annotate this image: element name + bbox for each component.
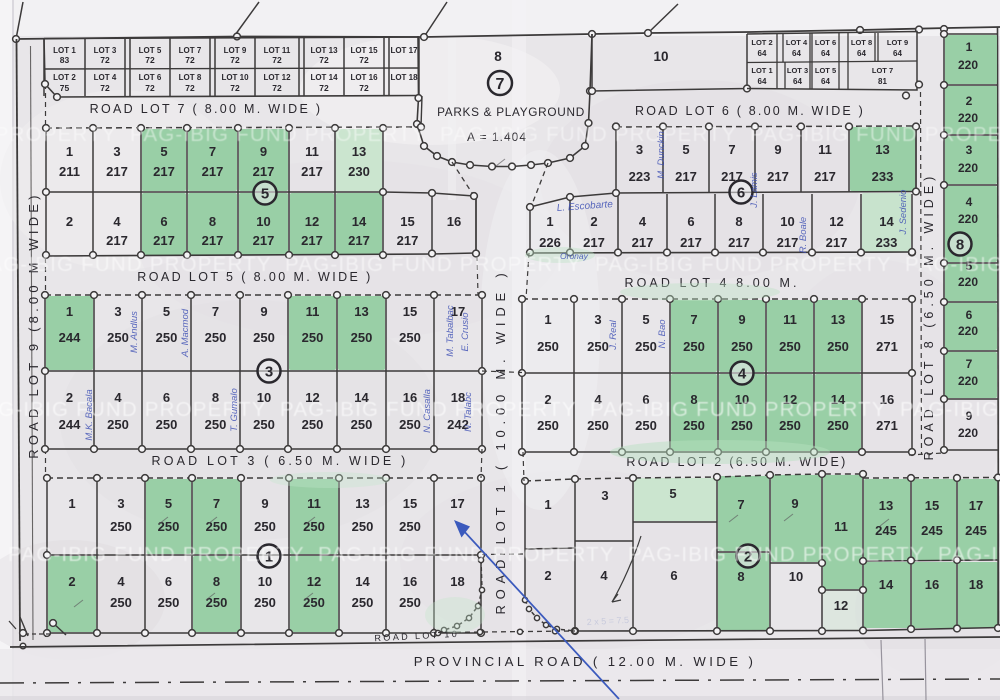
svg-text:217: 217 (253, 164, 275, 179)
svg-text:N. Talabc: N. Talabc (463, 392, 474, 432)
svg-text:LOT 4: LOT 4 (94, 73, 117, 82)
svg-text:T. Gumalo: T. Gumalo (229, 388, 240, 431)
svg-text:250: 250 (303, 595, 325, 610)
svg-text:LOT 17: LOT 17 (390, 46, 418, 55)
svg-text:72: 72 (319, 55, 329, 65)
svg-text:64: 64 (857, 49, 866, 58)
svg-text:LOT 18: LOT 18 (390, 73, 418, 82)
svg-text:64: 64 (758, 49, 767, 58)
svg-text:10: 10 (780, 214, 794, 229)
svg-text:1: 1 (544, 497, 551, 512)
svg-text:LOT 3: LOT 3 (94, 46, 117, 55)
svg-text:PAG-IBIG FUND PROPERTY: PAG-IBIG FUND PROPERTY (905, 253, 1000, 276)
svg-text:233: 233 (876, 235, 898, 250)
svg-text:14: 14 (352, 214, 367, 229)
svg-text:9: 9 (260, 144, 267, 159)
svg-text:3: 3 (594, 312, 601, 327)
svg-text:9: 9 (260, 304, 267, 319)
svg-text:A. Macmod: A. Macmod (180, 308, 191, 358)
svg-text:223: 223 (629, 169, 651, 184)
svg-text:LOT 7: LOT 7 (179, 46, 202, 55)
svg-text:250: 250 (587, 339, 609, 354)
svg-text:220: 220 (958, 161, 978, 175)
svg-text:72: 72 (230, 55, 240, 65)
svg-text:6: 6 (737, 184, 745, 201)
svg-text:14: 14 (879, 214, 894, 229)
svg-text:217: 217 (106, 164, 128, 179)
svg-text:13: 13 (355, 496, 369, 511)
svg-text:PAG-IBIG FUND PROPERTY: PAG-IBIG FUND PROPERTY (0, 123, 117, 146)
svg-text:250: 250 (205, 330, 227, 345)
svg-text:LOT 15: LOT 15 (350, 46, 378, 55)
svg-text:LOT 16: LOT 16 (350, 73, 378, 82)
svg-text:PAG-IBIG FUND PROPERTY: PAG-IBIG FUND PROPERTY (628, 543, 925, 566)
svg-text:3: 3 (117, 496, 124, 511)
svg-text:5: 5 (163, 304, 170, 319)
svg-text:J. Real: J. Real (608, 319, 619, 350)
svg-text:10: 10 (256, 214, 270, 229)
svg-text:LOT 13: LOT 13 (310, 46, 338, 55)
svg-text:72: 72 (272, 83, 282, 93)
svg-text:LOT 9: LOT 9 (887, 38, 908, 47)
svg-text:64: 64 (793, 77, 802, 86)
svg-text:Oronay: Oronay (560, 251, 589, 261)
svg-text:8: 8 (737, 569, 744, 584)
svg-text:N. Bao: N. Bao (657, 319, 668, 348)
svg-text:PAG-IBIG FUND PROPERTY: PAG-IBIG FUND PROPERTY (130, 123, 427, 146)
svg-text:LOT 2: LOT 2 (751, 38, 772, 47)
svg-text:220: 220 (958, 58, 978, 72)
svg-text:LOT 1: LOT 1 (751, 66, 772, 75)
svg-text:81: 81 (878, 77, 887, 86)
svg-text:PAG-IBIG FUND PROPERTY: PAG-IBIG FUND PROPERTY (0, 398, 267, 421)
svg-text:9: 9 (791, 496, 798, 511)
svg-text:4: 4 (113, 214, 121, 229)
svg-text:1: 1 (966, 40, 973, 54)
svg-text:217: 217 (202, 233, 224, 248)
svg-text:LOT 3: LOT 3 (787, 66, 808, 75)
svg-text:220: 220 (958, 212, 978, 226)
svg-text:217: 217 (767, 169, 789, 184)
svg-text:15: 15 (400, 214, 414, 229)
svg-text:PAG-IBIG FUND PROPERTY: PAG-IBIG FUND PROPERTY (938, 543, 1000, 566)
svg-text:72: 72 (185, 83, 195, 93)
svg-text:11: 11 (305, 144, 319, 159)
svg-text:18: 18 (969, 577, 983, 592)
svg-text:2: 2 (68, 574, 75, 589)
svg-text:LOT 2: LOT 2 (53, 73, 76, 82)
svg-text:64: 64 (821, 77, 830, 86)
svg-text:17: 17 (450, 496, 464, 511)
svg-text:271: 271 (876, 339, 898, 354)
svg-text:250: 250 (206, 519, 228, 534)
svg-text:7: 7 (737, 497, 744, 512)
svg-text:7: 7 (212, 304, 219, 319)
svg-text:72: 72 (185, 55, 195, 65)
svg-text:250: 250 (351, 330, 373, 345)
svg-text:LOT 7: LOT 7 (872, 66, 893, 75)
svg-text:5: 5 (261, 185, 269, 202)
svg-text:4: 4 (117, 574, 125, 589)
svg-text:PAG-IBIG FUND PROPERTY: PAG-IBIG FUND PROPERTY (900, 398, 1000, 421)
svg-text:250: 250 (399, 595, 421, 610)
svg-text:72: 72 (359, 83, 369, 93)
svg-text:250: 250 (107, 330, 129, 345)
svg-text:12: 12 (305, 214, 319, 229)
svg-text:15: 15 (880, 312, 894, 327)
svg-text:3: 3 (265, 363, 273, 380)
svg-text:250: 250 (110, 595, 132, 610)
svg-text:217: 217 (777, 235, 799, 250)
svg-text:217: 217 (202, 164, 224, 179)
svg-text:PAG-IBIG FUND PROPERTY: PAG-IBIG FUND PROPERTY (0, 253, 272, 276)
svg-text:18: 18 (450, 574, 464, 589)
svg-text:15: 15 (403, 304, 417, 319)
svg-text:PAG-IBIG FUND PROPERTY: PAG-IBIG FUND PROPERTY (590, 398, 887, 421)
svg-text:8: 8 (209, 214, 216, 229)
svg-text:M.K. Bacala: M.K. Bacala (84, 389, 95, 440)
svg-text:11: 11 (834, 519, 848, 534)
svg-text:13: 13 (352, 144, 366, 159)
svg-text:LOT 1: LOT 1 (53, 46, 76, 55)
svg-text:7: 7 (209, 144, 216, 159)
svg-text:10: 10 (789, 569, 803, 584)
svg-text:64: 64 (893, 49, 902, 58)
svg-text:250: 250 (110, 519, 132, 534)
svg-text:9: 9 (261, 496, 268, 511)
svg-text:12: 12 (829, 214, 843, 229)
svg-text:12: 12 (307, 574, 321, 589)
svg-text:250: 250 (254, 519, 276, 534)
svg-text:6: 6 (687, 214, 694, 229)
svg-text:11: 11 (306, 304, 320, 319)
svg-text:17: 17 (969, 498, 983, 513)
svg-text:211: 211 (59, 164, 80, 179)
svg-text:250: 250 (731, 339, 753, 354)
svg-text:11: 11 (783, 312, 797, 327)
svg-text:1: 1 (544, 312, 551, 327)
svg-text:244: 244 (59, 330, 81, 345)
svg-text:PAG-IBIG FUND PROPERTY: PAG-IBIG FUND PROPERTY (595, 253, 892, 276)
svg-text:220: 220 (958, 275, 978, 289)
svg-text:8: 8 (956, 236, 964, 253)
svg-text:9: 9 (738, 312, 745, 327)
svg-text:LOT 6: LOT 6 (815, 38, 836, 47)
svg-text:14: 14 (879, 577, 894, 592)
svg-text:M. Tabalbac: M. Tabalbac (445, 305, 456, 357)
svg-text:72: 72 (359, 55, 369, 65)
svg-text:LOT 8: LOT 8 (179, 73, 202, 82)
svg-text:217: 217 (680, 235, 702, 250)
svg-text:217: 217 (348, 233, 370, 248)
svg-text:6: 6 (670, 568, 677, 583)
svg-text:250: 250 (253, 330, 275, 345)
svg-text:245: 245 (875, 523, 897, 538)
svg-text:ROAD LOT 6 ( 8.00 M. WIDE ): ROAD LOT 6 ( 8.00 M. WIDE ) (635, 104, 865, 118)
svg-text:250: 250 (158, 595, 180, 610)
svg-text:LOT 5: LOT 5 (815, 66, 836, 75)
svg-text:4: 4 (966, 195, 973, 209)
svg-text:LOT 5: LOT 5 (139, 46, 162, 55)
svg-text:M. Dunckin: M. Dunckin (656, 131, 667, 179)
svg-text:250: 250 (352, 595, 374, 610)
svg-text:72: 72 (319, 83, 329, 93)
svg-text:250: 250 (302, 330, 324, 345)
svg-text:83: 83 (60, 55, 70, 65)
svg-text:PAG-IBIG FUND PROPERTY: PAG-IBIG FUND PROPERTY (285, 253, 582, 276)
svg-text:3: 3 (601, 488, 608, 503)
svg-text:4: 4 (639, 214, 647, 229)
svg-text:233: 233 (872, 169, 894, 184)
svg-text:6: 6 (160, 214, 167, 229)
svg-text:217: 217 (253, 233, 275, 248)
svg-text:217: 217 (301, 164, 323, 179)
svg-text:PAG-IBIG FUND PROPERTY: PAG-IBIG FUND PROPERTY (318, 543, 615, 566)
svg-text:217: 217 (826, 235, 848, 250)
svg-text:11: 11 (307, 496, 321, 511)
svg-text:1: 1 (66, 304, 73, 319)
svg-text:16: 16 (403, 574, 417, 589)
svg-text:72: 72 (230, 83, 240, 93)
svg-text:6: 6 (165, 574, 172, 589)
svg-text:8: 8 (213, 574, 220, 589)
svg-text:250: 250 (399, 330, 421, 345)
svg-text:72: 72 (100, 55, 110, 65)
svg-text:220: 220 (958, 324, 978, 338)
svg-text:5: 5 (165, 496, 172, 511)
svg-text:5: 5 (642, 312, 649, 327)
svg-text:75: 75 (60, 83, 70, 93)
svg-text:72: 72 (145, 83, 155, 93)
svg-text:13: 13 (831, 312, 845, 327)
svg-text:217: 217 (397, 233, 419, 248)
svg-text:250: 250 (303, 519, 325, 534)
svg-text:5: 5 (669, 486, 676, 501)
svg-text:J. Sedenio: J. Sedenio (898, 190, 909, 236)
svg-text:2: 2 (590, 214, 597, 229)
svg-text:2: 2 (66, 214, 73, 229)
svg-text:7: 7 (966, 357, 973, 371)
svg-text:1: 1 (66, 144, 73, 159)
svg-text:15: 15 (925, 498, 939, 513)
svg-text:PARKS & PLAYGROUND: PARKS & PLAYGROUND (437, 105, 585, 119)
svg-text:64: 64 (758, 77, 767, 86)
svg-text:250: 250 (827, 339, 849, 354)
svg-text:12: 12 (834, 598, 848, 613)
svg-text:16: 16 (925, 577, 939, 592)
svg-text:217: 217 (301, 233, 323, 248)
svg-text:217: 217 (632, 235, 654, 250)
svg-text:13: 13 (354, 304, 368, 319)
svg-text:10: 10 (258, 574, 272, 589)
svg-text:2: 2 (966, 94, 973, 108)
svg-text:245: 245 (921, 523, 943, 538)
svg-text:LOT 12: LOT 12 (263, 73, 291, 82)
svg-text:245: 245 (965, 523, 987, 538)
svg-text:PAG-IBIG FUND PROPERTY: PAG-IBIG FUND PROPERTY (8, 543, 305, 566)
svg-text:220: 220 (958, 426, 978, 440)
svg-text:PAG-IBIG FUND PROPERTY: PAG-IBIG FUND PROPERTY (750, 123, 1000, 146)
svg-text:217: 217 (814, 169, 836, 184)
svg-text:4: 4 (738, 365, 747, 382)
svg-text:LOT 14: LOT 14 (310, 73, 338, 82)
svg-text:72: 72 (272, 55, 282, 65)
svg-text:LOT 9: LOT 9 (224, 46, 247, 55)
svg-text:R. Boale: R. Boale (798, 217, 809, 253)
svg-text:220: 220 (958, 374, 978, 388)
svg-text:217: 217 (153, 233, 175, 248)
svg-text:217: 217 (153, 164, 175, 179)
svg-text:250: 250 (158, 519, 180, 534)
svg-text:ROAD LOT 7 ( 8.00 M. WIDE ): ROAD LOT 7 ( 8.00 M. WIDE ) (90, 102, 323, 116)
svg-text:16: 16 (447, 214, 461, 229)
svg-text:217: 217 (675, 169, 697, 184)
svg-text:250: 250 (779, 339, 801, 354)
svg-text:E. Crusio: E. Crusio (460, 312, 471, 351)
svg-text:3: 3 (113, 144, 120, 159)
svg-text:250: 250 (156, 330, 178, 345)
svg-text:15: 15 (403, 496, 417, 511)
svg-text:LOT 8: LOT 8 (851, 38, 872, 47)
svg-text:PAG-IBIG FUND PROPERTY: PAG-IBIG FUND PROPERTY (440, 123, 737, 146)
svg-text:3: 3 (114, 304, 121, 319)
svg-text:8: 8 (735, 214, 742, 229)
svg-text:1: 1 (68, 496, 75, 511)
svg-text:5: 5 (160, 144, 167, 159)
svg-text:250: 250 (635, 339, 657, 354)
svg-text:64: 64 (792, 49, 801, 58)
svg-text:250: 250 (537, 339, 559, 354)
svg-text:230: 230 (348, 164, 370, 179)
svg-text:250: 250 (254, 595, 276, 610)
svg-text:J. Lamis: J. Lamis (749, 172, 760, 209)
svg-text:217: 217 (728, 235, 750, 250)
svg-text:4: 4 (600, 568, 608, 583)
svg-text:LOT 10: LOT 10 (221, 73, 249, 82)
svg-text:LOT 11: LOT 11 (264, 46, 291, 55)
svg-text:72: 72 (100, 83, 110, 93)
svg-text:ROAD LOT 3 ( 6.50 M. WIDE ): ROAD LOT 3 ( 6.50 M. WIDE ) (151, 454, 408, 468)
svg-text:13: 13 (879, 498, 893, 513)
svg-text:2: 2 (544, 568, 551, 583)
svg-text:N. Casalla: N. Casalla (422, 389, 433, 433)
svg-text:64: 64 (821, 49, 830, 58)
svg-text:250: 250 (352, 519, 374, 534)
svg-text:LOT 4: LOT 4 (786, 38, 808, 47)
svg-text:M. Andlus: M. Andlus (129, 311, 140, 353)
svg-text:7: 7 (690, 312, 697, 327)
svg-text:1: 1 (546, 214, 553, 229)
svg-text:217: 217 (583, 235, 605, 250)
svg-text:LOT 6: LOT 6 (139, 73, 162, 82)
svg-text:217: 217 (106, 233, 128, 248)
svg-text:10: 10 (653, 49, 668, 64)
svg-text:14: 14 (355, 574, 370, 589)
svg-text:7: 7 (213, 496, 220, 511)
svg-text:250: 250 (399, 519, 421, 534)
svg-text:8: 8 (494, 49, 502, 64)
svg-text:250: 250 (683, 339, 705, 354)
svg-text:6: 6 (966, 308, 973, 322)
svg-text:72: 72 (145, 55, 155, 65)
svg-text:7: 7 (496, 76, 505, 93)
